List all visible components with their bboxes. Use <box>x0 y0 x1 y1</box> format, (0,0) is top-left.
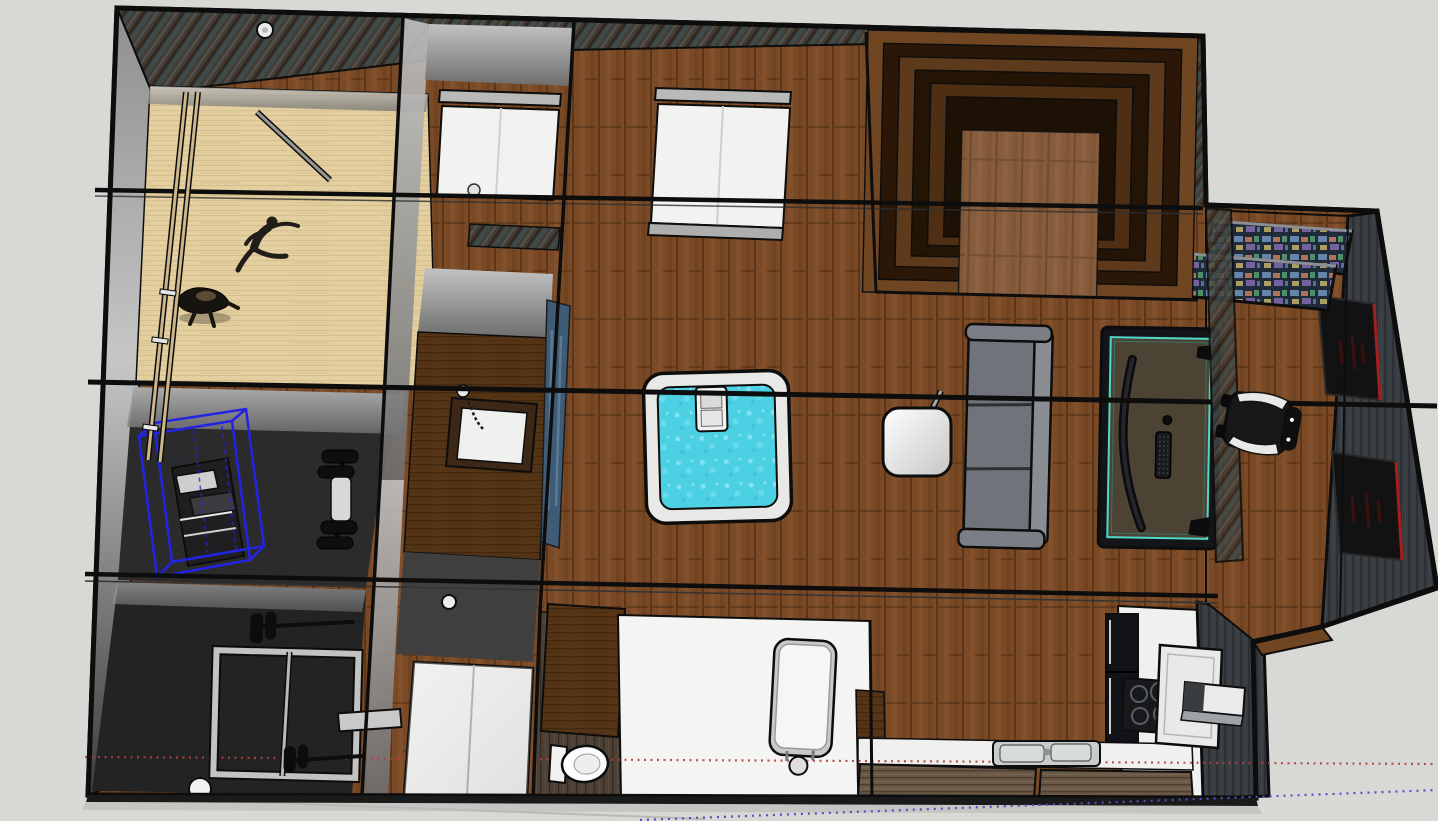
weight-plate <box>318 466 354 478</box>
tiered-lounge[interactable] <box>863 30 1198 299</box>
bed-small-headboard <box>439 90 561 106</box>
toilet-room-cabinet[interactable] <box>541 604 625 737</box>
kitchen-sink[interactable] <box>993 741 1100 766</box>
vanity-sink[interactable] <box>446 398 537 472</box>
rack-pad <box>331 477 351 521</box>
wardrobe-sheen <box>404 662 533 798</box>
model-viewport[interactable] <box>0 0 1438 821</box>
barbell-plate <box>265 611 277 639</box>
barbell-plate <box>283 746 296 772</box>
gym-lower-floor[interactable] <box>92 582 366 795</box>
kitchen-divider-edge[interactable] <box>870 620 872 799</box>
gaming-desk[interactable] <box>1098 327 1220 549</box>
weight-plate <box>321 521 357 534</box>
sink-faucet <box>1044 749 1051 756</box>
vanity-basin <box>457 408 527 464</box>
wardrobe-white[interactable] <box>404 662 533 798</box>
sink-basin-2 <box>1051 744 1091 761</box>
rack-hook <box>364 489 378 497</box>
hot-tub-step-tread-2 <box>701 410 722 427</box>
vanity-room-wall-face <box>418 268 553 338</box>
hood-duct-side <box>1183 682 1205 712</box>
sofa[interactable] <box>958 324 1053 549</box>
bed-double-headboard <box>655 88 791 104</box>
barbell-plate <box>250 613 264 643</box>
ceiling-light-2[interactable] <box>442 595 456 609</box>
ceiling-light-1[interactable] <box>257 22 273 38</box>
sink-basin-1 <box>1000 745 1044 762</box>
small-bedroom-shelf[interactable] <box>468 224 560 250</box>
tiered-inner-highlight <box>958 130 1099 297</box>
poster-1[interactable] <box>1318 296 1380 400</box>
light-inner <box>262 27 268 33</box>
bathtub-basin <box>774 644 831 751</box>
weight-plate <box>317 537 353 549</box>
laundry-room-floor[interactable] <box>396 552 540 662</box>
dancer-2-skin <box>196 291 216 301</box>
kitchen-cabinet-1[interactable] <box>858 764 1036 799</box>
barbell-plate <box>297 744 308 768</box>
sofa-armrest-bottom <box>958 529 1044 549</box>
weight-plate <box>322 450 358 463</box>
lamp-shade <box>883 408 951 476</box>
dancer-2-shadow <box>179 312 231 324</box>
small-bedroom-wall-face <box>425 24 574 86</box>
bath-faucet <box>789 756 808 775</box>
bed-double[interactable] <box>648 88 791 240</box>
mouse[interactable] <box>1163 416 1172 425</box>
sofa-armrest-top <box>966 324 1052 342</box>
sofa-seat <box>963 331 1034 543</box>
